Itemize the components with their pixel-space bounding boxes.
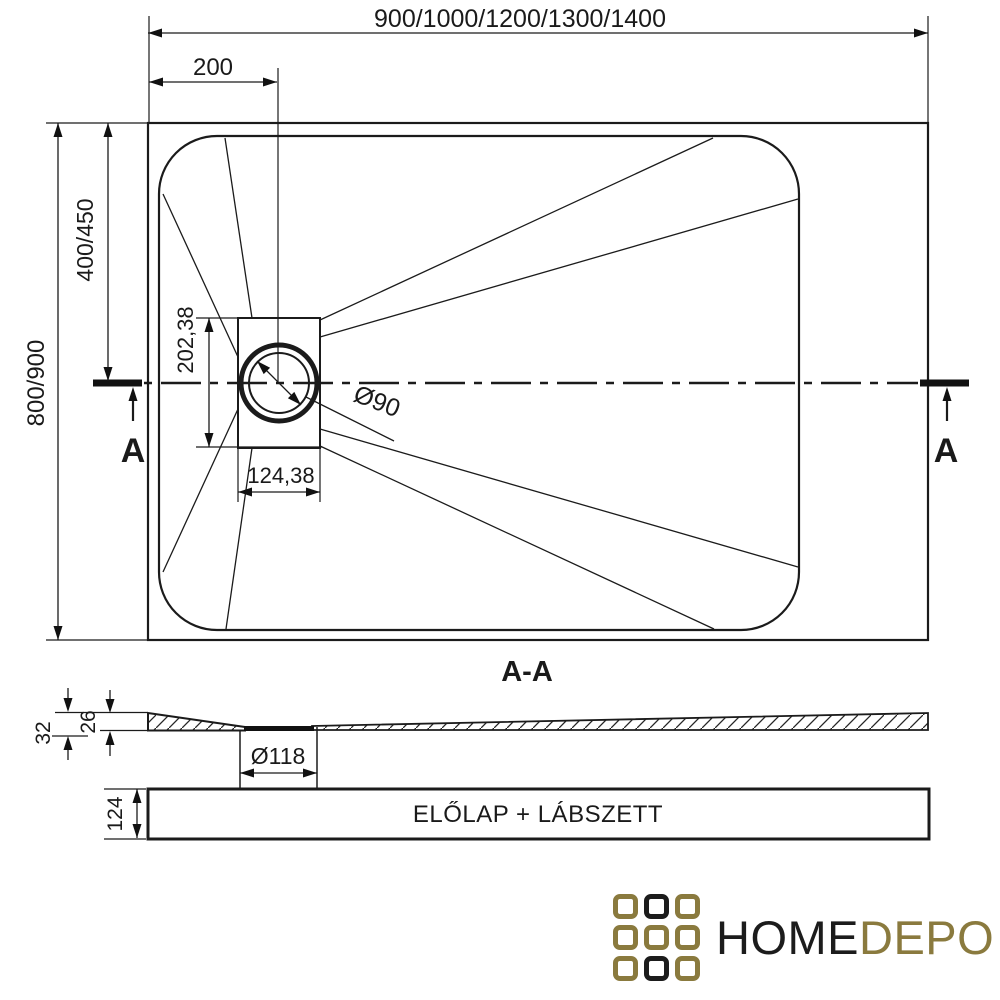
dim-panel-height: 124 (104, 796, 127, 831)
dim-total-width: 900/1000/1200/1300/1400 (374, 5, 666, 33)
section-right-wedge (312, 713, 928, 730)
front-panel-label: ELŐLAP + LÁBSZETT (413, 801, 663, 828)
logo-square-gold (644, 925, 669, 950)
section-view-title: A-A (501, 656, 553, 688)
dim-32 (64, 688, 73, 760)
drawing-canvas: 900/1000/1200/1300/1400 200 800/900 400/… (0, 0, 1000, 1000)
dim-drain-offset: 200 (193, 54, 233, 81)
logo-square-gold (675, 894, 700, 919)
dim-drain-box-height: 202,38 (173, 306, 198, 373)
logo-text-home: HOME (716, 911, 859, 964)
section-drain-plate (244, 726, 314, 731)
dim-drain-hole-diameter: Ø118 (251, 743, 306, 769)
homedepo-logo: HOMEDEPO (613, 893, 994, 981)
section-left-wedge (148, 713, 245, 731)
dim-body-height: 26 (77, 710, 100, 733)
logo-square-black (644, 894, 669, 919)
dim-26 (106, 690, 115, 756)
logo-grid-icon (613, 894, 700, 981)
dim-124 (133, 789, 142, 838)
shower-tray-technical-drawing: 900/1000/1200/1300/1400 200 800/900 400/… (0, 0, 1000, 1000)
section-marker-right: A (934, 432, 959, 470)
logo-square-gold (675, 925, 700, 950)
section-marker-left: A (121, 432, 146, 470)
dim-total-depth: 800/900 (23, 340, 50, 427)
logo-square-gold (613, 894, 638, 919)
top-view: 900/1000/1200/1300/1400 200 800/900 400/… (23, 5, 969, 640)
dim-drain-center-offset: 400/450 (72, 198, 98, 281)
section-extension-lines (52, 713, 148, 840)
logo-square-gold (675, 956, 700, 981)
logo-square-black (644, 956, 669, 981)
logo-text-depo: DEPO (859, 911, 994, 964)
dim-edge-height: 32 (32, 721, 55, 744)
logo-square-gold (613, 925, 638, 950)
logo-wordmark: HOMEDEPO (716, 914, 994, 961)
dim-drain-box-width: 124,38 (247, 463, 314, 488)
section-view: A-A ELŐLAP + LÁBSZETT (32, 656, 929, 839)
logo-square-gold (613, 956, 638, 981)
dim-118 (240, 769, 317, 778)
